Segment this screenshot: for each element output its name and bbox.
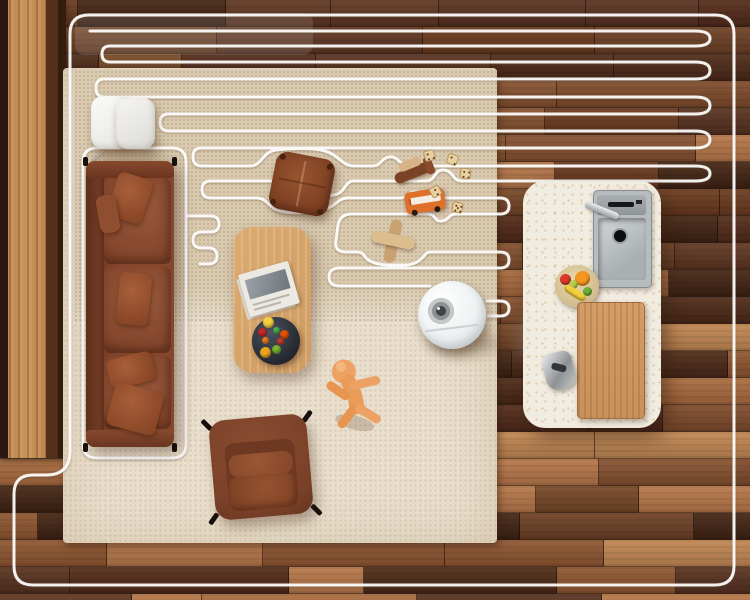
sofa-pillow [115, 271, 152, 326]
robot-vacuum [418, 281, 486, 349]
toy-figure [315, 358, 395, 436]
kitchen-sink [593, 190, 652, 288]
armchair-seat-cushion [228, 472, 299, 512]
armchair [208, 413, 314, 521]
room-render [0, 0, 750, 600]
toy-die [459, 167, 471, 179]
fruit-bowl [555, 265, 599, 307]
path-robot-stub [487, 301, 509, 316]
charging-dock-unit-right [116, 98, 155, 149]
sofa [86, 161, 174, 447]
toy-plane [366, 214, 421, 269]
sofa-armrest-bottom [86, 430, 174, 447]
lidar-turret [428, 298, 454, 324]
path-gap-hooks [187, 216, 219, 264]
snack-bowl [252, 317, 300, 365]
sink-drain [614, 230, 626, 242]
floor-pouf [267, 150, 337, 218]
toy-die [451, 201, 464, 214]
cutting-board [577, 302, 645, 419]
